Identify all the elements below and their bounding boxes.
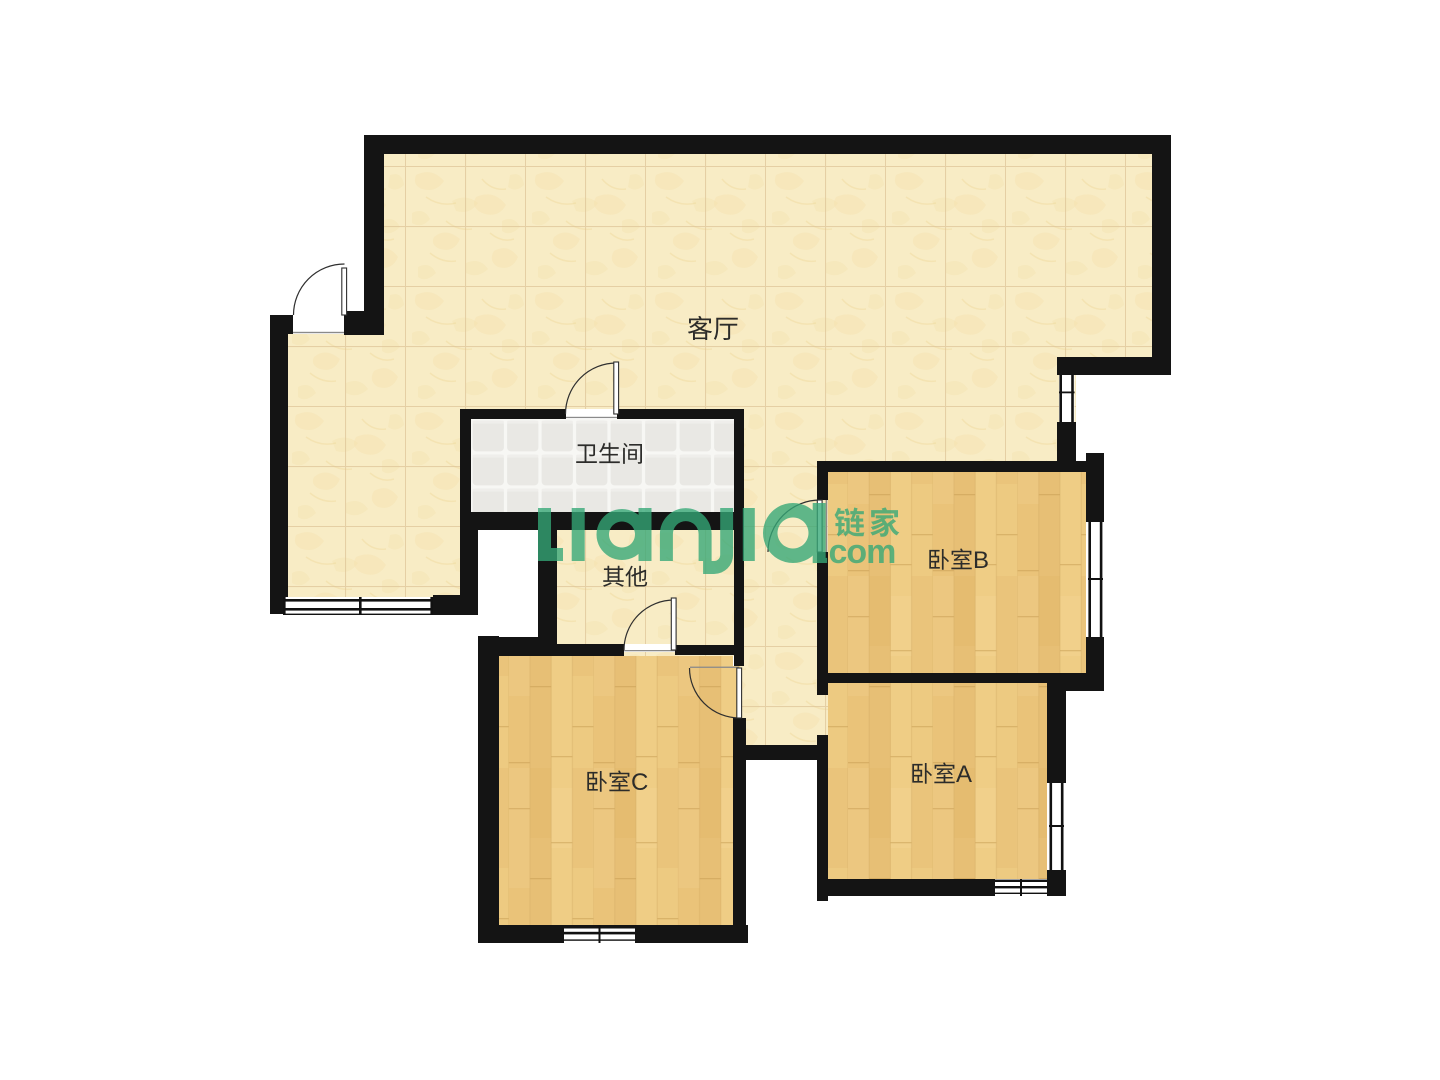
svg-text:.com: .com: [820, 533, 895, 571]
svg-text:A: A: [956, 761, 972, 788]
svg-text:C: C: [631, 769, 648, 796]
svg-text:B: B: [973, 547, 989, 574]
